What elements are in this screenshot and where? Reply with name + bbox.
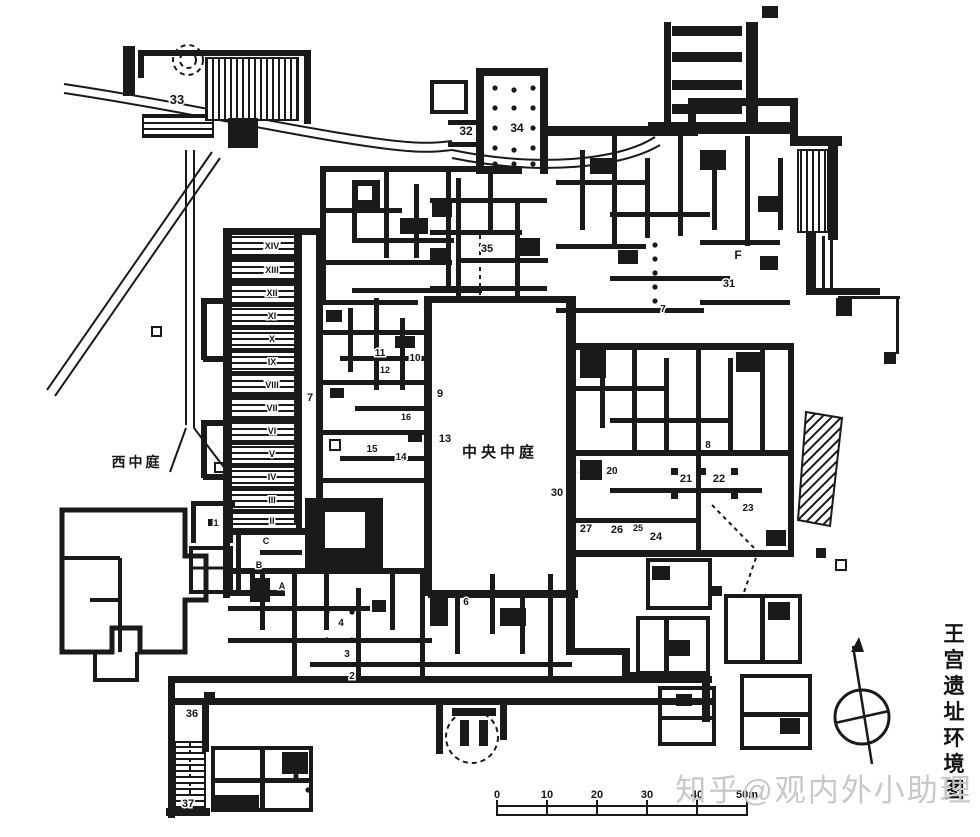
wall-segment <box>566 296 576 596</box>
plan-label-9: 9 <box>437 388 443 400</box>
wall-segment <box>566 648 628 655</box>
wall-segment <box>168 676 175 818</box>
wall-segment <box>736 352 760 372</box>
wall-segment <box>201 298 207 360</box>
wall-segment <box>430 230 522 235</box>
wall-segment <box>203 356 225 362</box>
wall-segment <box>652 566 670 580</box>
wall-segment <box>760 343 765 453</box>
wall-segment <box>191 501 196 543</box>
wall-segment <box>420 574 425 676</box>
column-base-dot <box>530 125 535 130</box>
wall-segment <box>324 574 329 630</box>
wall-segment <box>728 358 733 453</box>
wall-segment <box>806 232 816 294</box>
plan-label-36: 36 <box>186 708 198 720</box>
north-arrow-head <box>851 637 864 652</box>
wall-segment <box>204 692 215 703</box>
wall-segment <box>760 596 765 662</box>
plan-label-西中庭: 西中庭 <box>112 454 163 470</box>
wall-segment <box>228 501 233 543</box>
wall-segment <box>884 352 896 364</box>
plan-label-34: 34 <box>510 121 524 135</box>
column-base-dot <box>324 609 329 614</box>
wall-segment <box>138 50 144 78</box>
wall-segment <box>446 166 451 286</box>
wall-segment <box>766 530 786 546</box>
wall-segment <box>576 550 794 557</box>
column-base-dot <box>492 161 497 166</box>
wall-segment <box>745 136 750 246</box>
wall-segment <box>400 218 428 234</box>
scale-tick-label: 10 <box>541 789 553 801</box>
wall-segment <box>304 50 311 124</box>
site-plan-figure: 33323435F3177111012916131514530202122232… <box>0 0 980 837</box>
outlined-building-wall <box>62 510 206 652</box>
wall-segment <box>123 46 135 96</box>
wall-segment <box>610 276 730 281</box>
road-line <box>47 152 212 390</box>
wall-segment <box>788 343 794 557</box>
wall-segment <box>322 380 424 385</box>
wall-segment <box>490 574 495 634</box>
wall-segment <box>576 386 668 391</box>
wall-segment <box>296 232 302 532</box>
plan-label-1: 1 <box>213 518 218 528</box>
wall-segment <box>731 492 738 499</box>
wall-segment <box>836 298 852 316</box>
wall-segment <box>213 795 259 809</box>
wall-segment <box>456 178 461 300</box>
caption-character: 遗 <box>943 675 965 698</box>
caption-character: 址 <box>944 701 965 724</box>
wall-segment <box>230 440 296 445</box>
wall-segment <box>228 638 432 643</box>
wall-segment <box>590 158 612 174</box>
wall-segment <box>223 228 323 235</box>
wall-segment <box>746 22 758 122</box>
column-base-dot <box>652 284 657 289</box>
plan-label-XII: XII <box>266 288 277 298</box>
road-line <box>170 428 186 472</box>
column-base-dot <box>349 609 354 614</box>
wall-segment <box>452 708 496 716</box>
column-base-dot <box>530 145 535 150</box>
wall-segment <box>645 158 650 238</box>
wall-segment <box>660 716 714 720</box>
wall-segment <box>580 350 606 378</box>
wall-segment <box>580 150 585 230</box>
wall-segment <box>203 474 225 480</box>
outlined-building <box>836 560 846 570</box>
caption-character: 环 <box>944 727 965 750</box>
scale-tick-label: 30 <box>641 789 653 801</box>
plan-label-B: B <box>256 560 263 570</box>
plan-label-中央中庭: 中央中庭 <box>462 443 538 461</box>
wall-segment <box>390 574 395 630</box>
wall-segment <box>320 260 452 265</box>
striped-magazine-area <box>143 115 213 137</box>
inner-room-opening <box>358 186 372 200</box>
wall-segment <box>213 778 311 783</box>
wall-segment <box>664 618 669 673</box>
wall-segment <box>488 174 493 234</box>
outlined-building <box>432 82 466 112</box>
wall-segment <box>700 300 790 305</box>
wall-segment <box>712 586 722 596</box>
wall-segment <box>500 698 507 740</box>
wall-segment <box>320 166 326 302</box>
plan-label-26: 26 <box>611 524 623 536</box>
road-line <box>55 158 220 396</box>
wall-segment <box>140 50 310 56</box>
plan-label-III: III <box>268 495 276 505</box>
wall-segment <box>408 430 422 442</box>
wall-segment <box>292 574 297 676</box>
wall-segment <box>322 330 424 335</box>
wall-segment <box>556 308 704 313</box>
plan-label-3: 3 <box>344 649 350 660</box>
caption-character: 王 <box>944 623 965 646</box>
stepped-area <box>798 150 828 232</box>
wall-segment <box>612 136 617 246</box>
wall-segment <box>476 68 548 76</box>
outlined-building <box>330 440 340 450</box>
dashed-circle-feature <box>173 45 203 75</box>
plan-label-IV: IV <box>268 472 277 482</box>
wall-segment <box>566 592 575 654</box>
wall-segment <box>230 348 296 353</box>
plan-label-VI: VI <box>268 426 277 436</box>
wall-segment <box>230 279 296 284</box>
plan-label-II: II <box>269 516 274 526</box>
wall-segment <box>322 300 418 305</box>
wall-segment <box>672 80 742 90</box>
wall-segment <box>672 26 742 36</box>
wall-segment <box>230 486 296 491</box>
wall-segment <box>201 420 207 478</box>
wall-segment <box>672 104 742 114</box>
dashed-circle-feature <box>446 711 498 763</box>
plan-label-31: 31 <box>723 278 735 290</box>
plan-label-22: 22 <box>713 473 725 485</box>
column-base-dot <box>492 85 497 90</box>
column-base-dot <box>492 145 497 150</box>
wall-segment <box>806 288 880 295</box>
column-base-dot <box>652 298 657 303</box>
wall-segment <box>760 256 778 270</box>
column-base-dot <box>530 85 535 90</box>
wall-segment <box>476 166 522 174</box>
plan-label-30: 30 <box>551 487 563 499</box>
column-base-dot <box>492 125 497 130</box>
plan-label-10: 10 <box>409 353 421 364</box>
column-base-dot <box>293 759 298 764</box>
wall-segment <box>348 308 353 372</box>
wall-segment <box>430 286 547 291</box>
wall-segment <box>236 528 241 592</box>
plan-label-VII: VII <box>266 403 277 413</box>
plan-label-33: 33 <box>170 92 184 107</box>
plan-label-32: 32 <box>459 124 473 138</box>
plan-label-23: 23 <box>742 503 754 514</box>
column-base-dot <box>511 147 516 152</box>
wall-segment <box>702 676 710 722</box>
column-base-dot <box>349 637 354 642</box>
wall-segment <box>310 662 572 667</box>
hatched-slope-band <box>798 412 842 526</box>
column-base-dot <box>492 105 497 110</box>
plan-label-14: 14 <box>395 452 407 463</box>
wall-segment <box>816 548 826 558</box>
plan-label-35: 35 <box>481 243 493 255</box>
inner-room-opening <box>325 512 365 548</box>
wall-segment <box>456 258 548 263</box>
plan-label-XIII: XIII <box>265 265 279 275</box>
watermark-text: 知乎@观内外小助理 <box>675 773 972 808</box>
wall-segment <box>250 578 270 602</box>
wall-segment <box>448 142 478 147</box>
wall-segment <box>230 371 296 376</box>
wall-segment <box>742 712 810 717</box>
wall-segment <box>326 310 342 322</box>
plan-label-37: 37 <box>182 798 194 810</box>
plan-label-F: F <box>734 248 741 262</box>
wall-segment <box>340 456 424 461</box>
wall-segment <box>230 394 296 399</box>
column-base-dot <box>652 242 657 247</box>
wall-segment <box>610 418 732 423</box>
column-base-dot <box>305 787 310 792</box>
wall-segment <box>518 238 540 256</box>
plan-label-IX: IX <box>268 357 277 367</box>
wall-segment <box>778 158 783 230</box>
wall-segment <box>202 704 209 752</box>
wall-segment <box>352 238 454 243</box>
plan-label-8: 8 <box>705 440 711 451</box>
wall-segment <box>664 358 669 453</box>
column-base-dot <box>511 161 516 166</box>
wall-segment <box>436 698 443 754</box>
wall-segment <box>455 594 460 654</box>
wall-segment <box>230 509 296 514</box>
wall-segment <box>676 694 692 706</box>
plan-label-27: 27 <box>580 523 592 535</box>
plan-label-16: 16 <box>401 412 411 422</box>
plan-label-15: 15 <box>366 444 378 455</box>
plan-label-C: C <box>263 536 270 546</box>
plan-label-5: 5 <box>341 553 347 564</box>
plan-label-12: 12 <box>380 365 390 375</box>
column-base-dot <box>511 87 516 92</box>
wall-segment <box>355 406 424 411</box>
wall-segment <box>430 198 547 203</box>
wall-segment <box>828 136 838 240</box>
wall-segment <box>696 343 701 557</box>
wall-segment <box>430 598 448 626</box>
wall-segment <box>228 118 258 148</box>
wall-segment <box>479 720 488 746</box>
column-base-dot <box>652 256 657 261</box>
stepped-area <box>206 58 298 120</box>
wall-segment <box>230 302 296 307</box>
wall-segment <box>576 343 792 350</box>
wall-segment <box>618 250 638 264</box>
column-base-dot <box>324 637 329 642</box>
column-base-dot <box>530 161 535 166</box>
outlined-building <box>152 327 161 336</box>
wall-segment <box>699 468 706 475</box>
wall-segment <box>668 640 690 656</box>
compass-cross-axis <box>835 711 889 723</box>
wall-segment <box>648 122 798 134</box>
wall-segment <box>424 296 432 596</box>
wall-segment <box>320 208 402 213</box>
plan-label-20: 20 <box>606 466 618 477</box>
plan-label-VIII: VIII <box>265 380 279 390</box>
wall-segment <box>432 203 452 217</box>
wall-segment <box>556 180 646 185</box>
wall-segment <box>260 550 302 555</box>
wall-segment <box>223 228 230 530</box>
wall-segment <box>430 248 448 260</box>
plan-label-7: 7 <box>660 304 666 315</box>
wall-segment <box>822 236 825 294</box>
caption-character: 宫 <box>944 648 965 672</box>
plan-label-6: 6 <box>463 597 469 608</box>
wall-segment <box>672 52 742 62</box>
plan-label-XI: XI <box>268 311 277 321</box>
plan-label-13: 13 <box>439 433 451 445</box>
wall-segment <box>580 460 602 480</box>
column-base-dot <box>652 270 657 275</box>
wall-segment <box>830 236 833 294</box>
plan-label-XIV: XIV <box>265 241 280 251</box>
wall-segment <box>671 492 678 499</box>
wall-segment <box>768 602 790 620</box>
wall-segment <box>372 600 386 612</box>
striped-magazine-area <box>231 234 295 524</box>
wall-segment <box>500 608 526 626</box>
wall-segment <box>230 417 296 422</box>
wall-segment <box>540 68 548 174</box>
plan-label-11: 11 <box>375 348 386 359</box>
wall-segment <box>228 606 370 611</box>
wall-segment <box>700 150 726 170</box>
plan-label-4: 4 <box>338 618 344 629</box>
wall-segment <box>731 468 738 475</box>
plan-label-2: 2 <box>349 671 355 682</box>
scale-tick-label: 0 <box>494 789 500 801</box>
compass-north-arrow <box>835 637 889 764</box>
wall-segment <box>610 212 710 217</box>
scale-tick-label: 20 <box>591 789 603 801</box>
wall-segment <box>320 166 482 172</box>
wall-segment <box>678 136 683 236</box>
compass-needle <box>853 646 872 764</box>
wall-segment <box>671 468 678 475</box>
column-base-dot <box>530 105 535 110</box>
wall-segment <box>230 256 296 261</box>
wall-segment <box>374 298 379 390</box>
wall-segment <box>460 720 469 746</box>
wall-segment <box>896 296 899 354</box>
wall-segment <box>400 318 405 390</box>
wall-segment <box>428 296 576 303</box>
column-bases <box>293 85 657 792</box>
wall-segment <box>548 574 553 676</box>
wall-segment <box>230 325 296 330</box>
plan-label-7: 7 <box>307 392 313 404</box>
wall-segment <box>428 590 578 598</box>
plan-label-21: 21 <box>680 473 692 485</box>
wall-segment <box>700 240 780 245</box>
wall-segment <box>758 196 780 212</box>
column-base-dot <box>293 773 298 778</box>
wall-segment <box>632 343 637 453</box>
plan-label-24: 24 <box>650 531 663 543</box>
plan-label-X: X <box>269 334 275 344</box>
wall-segment <box>556 244 646 249</box>
wall-segment <box>330 388 344 398</box>
palace-plan-svg: 33323435F3177111012916131514530202122232… <box>0 0 980 837</box>
wall-segment <box>838 296 900 299</box>
plan-label-25: 25 <box>633 523 643 533</box>
wall-segment <box>395 336 415 348</box>
column-base-dot <box>511 105 516 110</box>
plan-label-A: A <box>279 581 286 591</box>
wall-segment <box>322 478 424 483</box>
wall-segment <box>610 488 762 493</box>
wall-segment <box>780 718 800 734</box>
wall-segment <box>762 6 778 18</box>
plan-label-V: V <box>269 449 275 459</box>
outlined-building-wall <box>95 652 137 680</box>
wall-segment <box>230 463 296 468</box>
wall-segment <box>664 22 671 122</box>
